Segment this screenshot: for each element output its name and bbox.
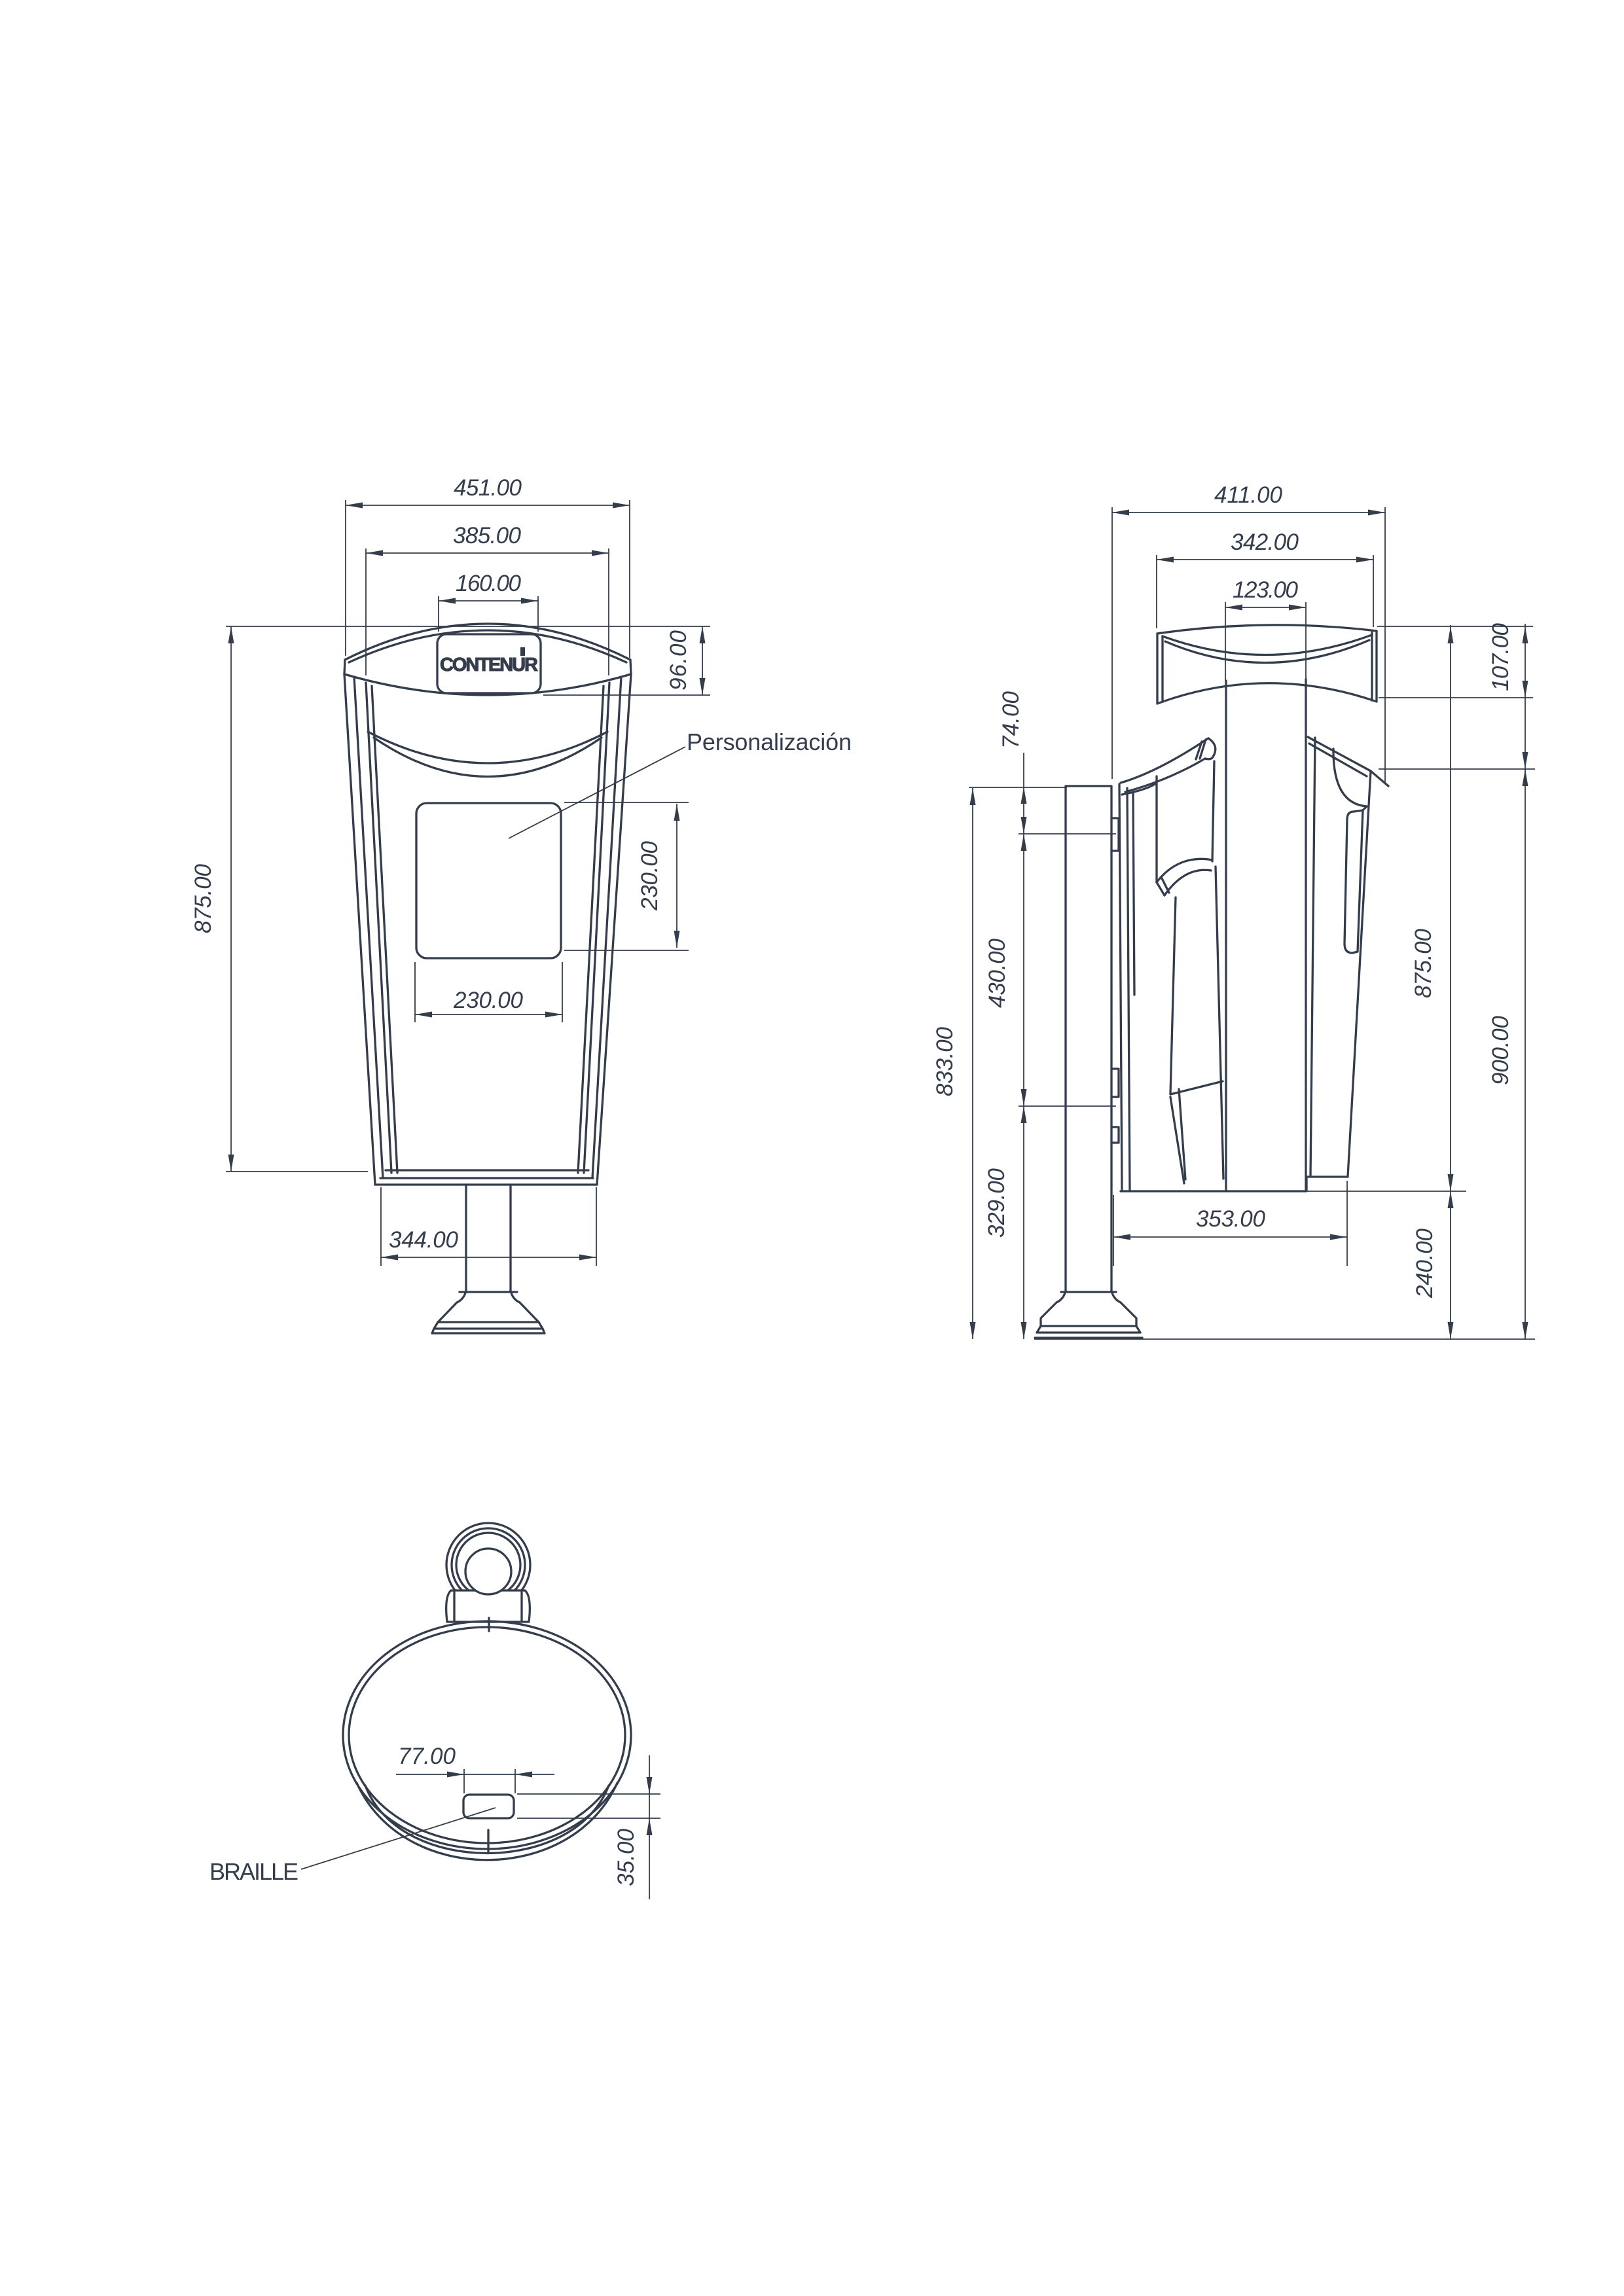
svg-text:Personalización: Personalización bbox=[687, 728, 852, 755]
svg-text:230.00: 230.00 bbox=[637, 840, 662, 911]
svg-text:385.00: 385.00 bbox=[453, 523, 522, 548]
svg-text:35.00: 35.00 bbox=[613, 1828, 639, 1886]
svg-text:430.00: 430.00 bbox=[984, 938, 1010, 1008]
svg-text:353.00: 353.00 bbox=[1196, 1206, 1266, 1232]
svg-text:329.00: 329.00 bbox=[984, 1168, 1009, 1238]
svg-text:160.00: 160.00 bbox=[456, 571, 522, 596]
svg-text:900.00: 900.00 bbox=[1488, 1015, 1513, 1085]
svg-text:875.00: 875.00 bbox=[1411, 928, 1436, 998]
svg-text:BRAILLE: BRAILLE bbox=[209, 1858, 298, 1885]
svg-text:74.00: 74.00 bbox=[998, 691, 1024, 749]
svg-text:411.00: 411.00 bbox=[1214, 482, 1283, 508]
svg-text:342.00: 342.00 bbox=[1231, 529, 1299, 555]
svg-text:344.00: 344.00 bbox=[389, 1227, 459, 1253]
svg-text:CONTENUR: CONTENUR bbox=[440, 655, 538, 675]
svg-text:77.00: 77.00 bbox=[398, 1744, 456, 1769]
svg-text:875.00: 875.00 bbox=[190, 863, 216, 933]
svg-text:451.00: 451.00 bbox=[454, 475, 522, 501]
svg-text:240.00: 240.00 bbox=[1412, 1228, 1437, 1299]
svg-text:96.00: 96.00 bbox=[666, 630, 691, 691]
svg-text:123.00: 123.00 bbox=[1233, 577, 1299, 603]
svg-text:833.00: 833.00 bbox=[932, 1026, 958, 1096]
svg-text:230.00: 230.00 bbox=[453, 988, 524, 1013]
svg-text:107.00: 107.00 bbox=[1488, 622, 1513, 691]
